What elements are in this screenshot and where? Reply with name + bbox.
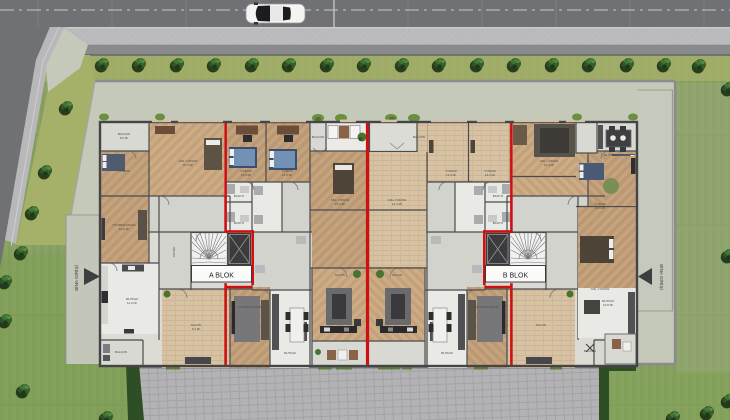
svg-text:BANYO: BANYO (234, 221, 245, 225)
svg-text:SALON: SALON (536, 323, 546, 327)
svg-text:BALKON: BALKON (413, 135, 425, 139)
svg-text:11.2 M²: 11.2 M² (127, 301, 137, 305)
svg-text:BANYO: BANYO (234, 194, 245, 198)
svg-text:21.4 M²: 21.4 M² (392, 202, 402, 206)
svg-text:10.2 M²: 10.2 M² (119, 227, 129, 231)
svg-text:BİNA GİRİŞİ: BİNA GİRİŞİ (659, 264, 665, 290)
svg-text:8.6 M²: 8.6 M² (120, 136, 129, 140)
svg-text:MUTFAK: MUTFAK (441, 351, 453, 355)
svg-text:MUTFAK: MUTFAK (604, 153, 616, 157)
svg-text:21.4 M²: 21.4 M² (183, 163, 193, 167)
svg-text:SALON: SALON (392, 273, 402, 277)
svg-text:BALKON: BALKON (115, 350, 127, 354)
svg-text:GNL.Y.ODASI: GNL.Y.ODASI (591, 287, 610, 291)
svg-text:OTURMA ODASI: OTURMA ODASI (238, 305, 261, 309)
svg-text:13.3 M²: 13.3 M² (446, 173, 456, 177)
svg-text:B BLOK: B BLOK (503, 273, 529, 280)
svg-text:BİNA GİRİŞİ: BİNA GİRİŞİ (73, 265, 79, 291)
svg-text:21.4 M²: 21.4 M² (335, 202, 345, 206)
svg-text:BALKON: BALKON (584, 349, 596, 353)
svg-text:12.6 M²: 12.6 M² (595, 206, 605, 210)
svg-text:SALON: SALON (335, 273, 345, 277)
svg-text:21.4 M²: 21.4 M² (544, 163, 554, 167)
svg-text:BALKON: BALKON (312, 135, 324, 139)
svg-text:BANYO: BANYO (493, 194, 504, 198)
svg-text:13.3 M²: 13.3 M² (282, 173, 292, 177)
svg-text:A BLOK: A BLOK (209, 273, 234, 280)
svg-text:BANYO: BANYO (493, 221, 504, 225)
svg-text:ANTRE: ANTRE (172, 247, 176, 257)
svg-text:9.4 M²: 9.4 M² (192, 327, 201, 331)
svg-text:13.3 M²: 13.3 M² (485, 173, 495, 177)
svg-text:MUTFAK: MUTFAK (284, 351, 296, 355)
svg-text:10.8 M²: 10.8 M² (603, 303, 613, 307)
svg-text:OTURMA ODASI: OTURMA ODASI (475, 305, 498, 309)
svg-text:Y.ODASI: Y.ODASI (118, 169, 130, 173)
svg-text:13.3 M²: 13.3 M² (241, 173, 251, 177)
